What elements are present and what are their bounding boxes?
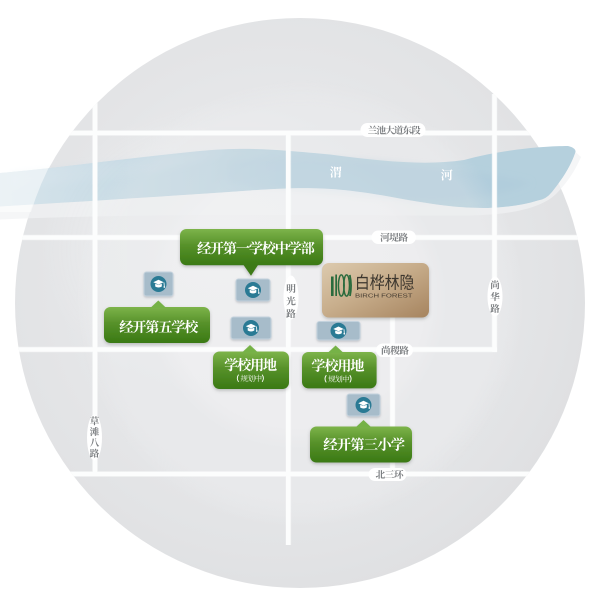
svg-text:BIRCH FOREST: BIRCH FOREST: [355, 294, 413, 300]
